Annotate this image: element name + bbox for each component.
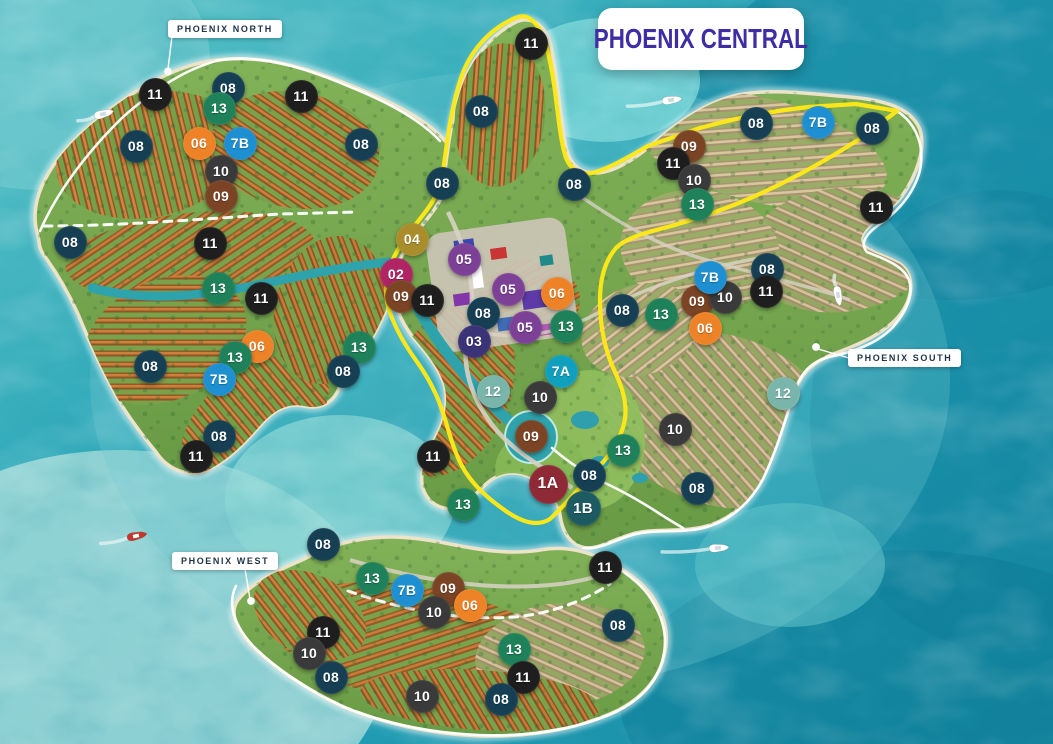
south-label-dot — [813, 344, 819, 350]
map-marker-08[interactable]: 08 — [426, 167, 459, 200]
map-marker-05[interactable]: 05 — [492, 273, 525, 306]
map-marker-11[interactable]: 11 — [417, 440, 450, 473]
map-marker-13[interactable]: 13 — [356, 562, 389, 595]
map-marker-7b[interactable]: 7B — [203, 363, 236, 396]
map-marker-08[interactable]: 08 — [465, 95, 498, 128]
map-marker-11[interactable]: 11 — [139, 78, 172, 111]
map-marker-08[interactable]: 08 — [307, 528, 340, 561]
map-marker-03[interactable]: 03 — [458, 325, 491, 358]
map-marker-08[interactable]: 08 — [602, 609, 635, 642]
map-marker-11[interactable]: 11 — [180, 440, 213, 473]
map-marker-08[interactable]: 08 — [315, 661, 348, 694]
map-marker-12[interactable]: 12 — [477, 375, 510, 408]
map-marker-11[interactable]: 11 — [860, 191, 893, 224]
map-marker-11[interactable]: 11 — [194, 227, 227, 260]
map-marker-08[interactable]: 08 — [573, 459, 606, 492]
map-marker-13[interactable]: 13 — [645, 298, 678, 331]
map-marker-1a[interactable]: 1A — [529, 465, 568, 504]
map-marker-10[interactable]: 10 — [524, 381, 557, 414]
map-marker-13[interactable]: 13 — [447, 488, 480, 521]
map-marker-04[interactable]: 04 — [396, 223, 429, 256]
map-marker-1b[interactable]: 1B — [566, 491, 601, 526]
map-marker-08[interactable]: 08 — [856, 112, 889, 145]
map-marker-7b[interactable]: 7B — [694, 261, 727, 294]
region-label-west: PHOENIX WEST — [172, 552, 278, 570]
region-label-south: PHOENIX SOUTH — [848, 349, 961, 367]
map-marker-06[interactable]: 06 — [689, 312, 722, 345]
map-marker-13[interactable]: 13 — [550, 310, 583, 343]
map-marker-08[interactable]: 08 — [327, 355, 360, 388]
map-marker-08[interactable]: 08 — [485, 683, 518, 716]
map-marker-11[interactable]: 11 — [285, 80, 318, 113]
map-marker-08[interactable]: 08 — [606, 294, 639, 327]
north-label-dot — [165, 68, 171, 74]
map-marker-10[interactable]: 10 — [418, 596, 451, 629]
map-marker-05[interactable]: 05 — [509, 311, 542, 344]
map-marker-13[interactable]: 13 — [203, 92, 236, 125]
map-marker-11[interactable]: 11 — [750, 275, 783, 308]
map-marker-08[interactable]: 08 — [54, 226, 87, 259]
map-marker-06[interactable]: 06 — [541, 277, 574, 310]
map-marker-11[interactable]: 11 — [245, 282, 278, 315]
map-marker-06[interactable]: 06 — [454, 589, 487, 622]
masterplan-map: PHOENIX NORTH PHOENIX SOUTH PHOENIX WEST… — [0, 0, 1053, 744]
map-marker-08[interactable]: 08 — [740, 107, 773, 140]
map-marker-08[interactable]: 08 — [134, 350, 167, 383]
map-marker-10[interactable]: 10 — [406, 680, 439, 713]
map-marker-08[interactable]: 08 — [681, 472, 714, 505]
map-marker-11[interactable]: 11 — [589, 551, 622, 584]
map-marker-13[interactable]: 13 — [607, 434, 640, 467]
west-label-dot — [248, 598, 254, 604]
map-marker-13[interactable]: 13 — [202, 272, 235, 305]
map-marker-7b[interactable]: 7B — [224, 127, 257, 160]
map-marker-7b[interactable]: 7B — [802, 106, 835, 139]
map-marker-11[interactable]: 11 — [515, 27, 548, 60]
map-marker-09[interactable]: 09 — [205, 180, 238, 213]
map-marker-09[interactable]: 09 — [515, 420, 548, 453]
map-marker-06[interactable]: 06 — [183, 127, 216, 160]
region-label-north: PHOENIX NORTH — [168, 20, 282, 38]
map-marker-10[interactable]: 10 — [659, 413, 692, 446]
map-marker-08[interactable]: 08 — [120, 130, 153, 163]
map-marker-05[interactable]: 05 — [448, 243, 481, 276]
page-title: PHOENIX CENTRAL — [594, 23, 808, 55]
map-marker-08[interactable]: 08 — [345, 128, 378, 161]
title-card: PHOENIX CENTRAL — [598, 8, 804, 70]
map-marker-7a[interactable]: 7A — [545, 355, 578, 388]
map-marker-11[interactable]: 11 — [411, 284, 444, 317]
map-marker-08[interactable]: 08 — [558, 168, 591, 201]
map-marker-7b[interactable]: 7B — [391, 574, 424, 607]
map-marker-12[interactable]: 12 — [767, 377, 800, 410]
map-marker-13[interactable]: 13 — [681, 188, 714, 221]
